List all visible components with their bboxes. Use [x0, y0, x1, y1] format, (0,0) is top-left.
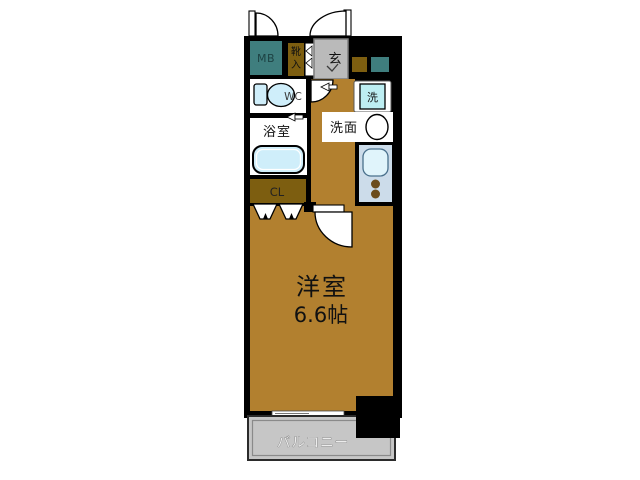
pillar [356, 396, 400, 438]
burner-icon [371, 180, 380, 189]
bathroom-label: 浴室 [263, 124, 291, 140]
shoe-storage-label-char2: 入 [291, 60, 301, 71]
washroom-door-arrow-tail [329, 85, 337, 89]
washroom-label: 洗面 [330, 121, 358, 136]
main-room-label: 洋室 [296, 273, 348, 301]
shoe-storage-label-char1: 靴 [291, 45, 301, 58]
room-door-leaf [313, 205, 344, 212]
toilet-label: WC [284, 91, 302, 103]
main-room-size: 6.6帖 [294, 303, 348, 327]
toilet-tank-icon [254, 84, 267, 105]
washing-machine-label: 洗 [367, 91, 378, 104]
entrance-label: 玄 [328, 52, 341, 67]
balcony-label: バルコニー [277, 435, 349, 451]
closet-label: CL [270, 185, 285, 199]
bathroom-door-arrow-tail [295, 115, 303, 119]
wash-basin-icon [366, 115, 388, 140]
floor-plan: MB 靴 入 玄 WC 洗 洗面 [0, 0, 640, 480]
kitchen-sink-icon [363, 149, 388, 176]
meter-box-door-leaf [249, 11, 255, 36]
floor-plan-svg: MB 靴 入 玄 WC 洗 洗面 [0, 0, 640, 480]
utility-box-teal [371, 57, 389, 72]
burner-icon [371, 190, 380, 199]
meter-box-label: MB [257, 52, 275, 65]
utility-box-brown [352, 57, 367, 72]
